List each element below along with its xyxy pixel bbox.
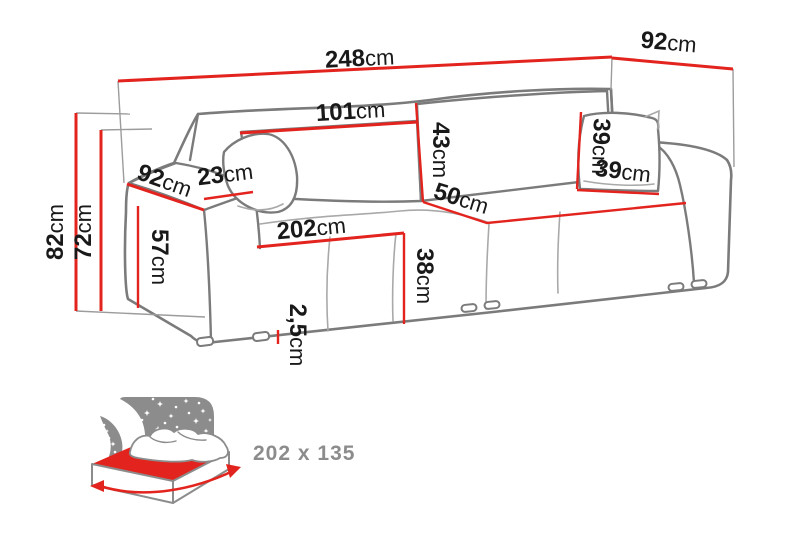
sofa-foot [197,337,214,347]
sleeping-function-icon: 202 x 135 [90,397,355,503]
extension-line [611,57,612,90]
label-total-depth: 92cm [640,27,698,59]
star-dot-icon [176,426,179,429]
sofa-foot [484,301,500,310]
label-backrest-height: 43cm [427,122,454,178]
star-icon [132,424,137,429]
extension-line [733,69,734,167]
dimension-line-total-depth [612,58,733,69]
star-icon [122,430,126,434]
star-dot-icon [108,437,111,440]
sofa-dimension-diagram: 248cm 92cm 101cm 43cm 50cm 202cm 38cm 2,… [0,0,800,533]
star-dot-icon [125,419,128,422]
label-total-width: 248cm [324,43,395,73]
star-dot-icon [103,424,106,427]
star-dot-icon [175,406,178,409]
label-total-height: 82cm [42,204,69,260]
sleeping-area-size: 202 x 135 [253,442,355,465]
unfold-arrowhead-right [226,464,241,478]
label-backrest-width: 101cm [315,96,386,127]
label-leg-height: 2,5cm [284,304,311,367]
star-dot-icon [152,398,155,401]
star-dot-icon [164,422,167,425]
sofa-foot [461,304,477,313]
star-dot-icon [132,433,135,436]
sofa-foot [253,332,270,342]
extension-line [101,129,152,130]
star-dot-icon [188,412,191,415]
star-dot-icon [141,419,144,422]
label-armrest-height: 57cm [146,229,173,285]
diagram-canvas: 248cm 92cm 101cm 43cm 50cm 202cm 38cm 2,… [0,0,800,533]
star-dot-icon [198,402,201,405]
label-seat-height: 38cm [411,248,438,304]
sofa-foot [691,280,707,289]
label-body-height: 72cm [70,204,97,260]
extension-line [118,81,124,183]
star-dot-icon [114,451,117,454]
extension-line [76,113,130,114]
star-icon [127,439,132,444]
sofa-foot [668,283,684,292]
